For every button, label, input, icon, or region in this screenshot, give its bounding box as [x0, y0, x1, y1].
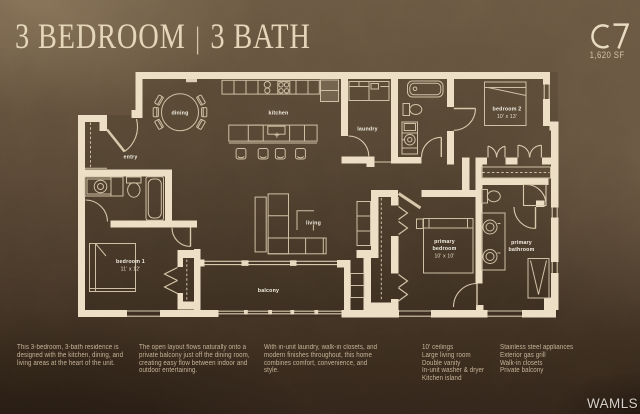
svg-text:bedroom: bedroom: [432, 246, 456, 252]
svg-text:bedroom 1: bedroom 1: [116, 259, 145, 265]
svg-text:entry: entry: [124, 155, 138, 161]
svg-text:bathroom: bathroom: [508, 247, 534, 253]
svg-text:laundry: laundry: [357, 127, 378, 133]
svg-text:primary: primary: [434, 239, 455, 245]
svg-text:living: living: [306, 221, 321, 227]
svg-text:balcony: balcony: [258, 288, 279, 294]
svg-text:bedroom 2: bedroom 2: [493, 107, 522, 113]
svg-text:kitchen: kitchen: [269, 111, 289, 117]
svg-text:11' x 12': 11' x 12': [121, 267, 141, 273]
svg-text:10' x 10': 10' x 10': [434, 254, 454, 260]
svg-text:primary: primary: [511, 240, 532, 246]
svg-text:10' x 13': 10' x 13': [497, 114, 517, 120]
svg-text:dining: dining: [171, 111, 188, 117]
